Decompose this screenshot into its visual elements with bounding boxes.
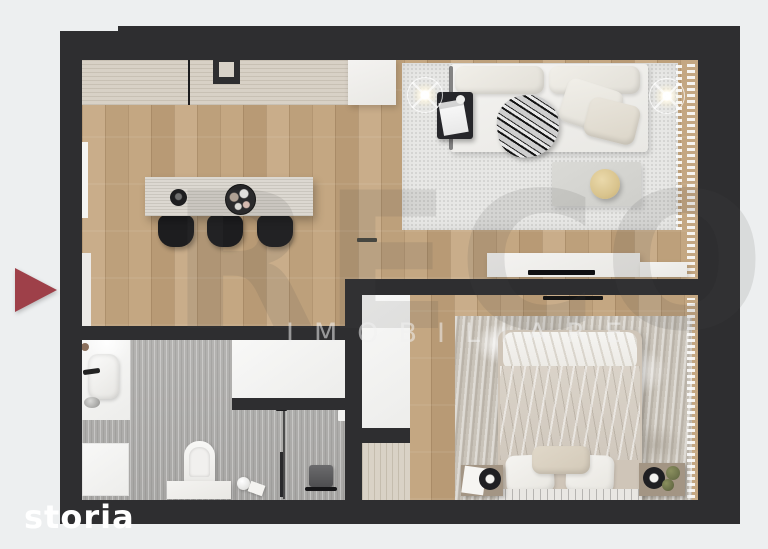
floor-lamp [407, 77, 443, 113]
sofa-back-cushion [455, 66, 544, 94]
soap-dish [84, 397, 100, 408]
living-bedroom-wall [345, 279, 698, 295]
potted-plant [666, 466, 680, 480]
bar-stool [158, 215, 194, 247]
closet-stub-wall [362, 428, 410, 443]
outer-wall-right [698, 31, 740, 524]
wall-mounted-tv [543, 296, 603, 300]
floor-plan-image: RECO IMOBILIARE storia [0, 0, 768, 549]
kitchen-counter-divider [188, 58, 190, 105]
floor-vent [357, 238, 377, 242]
sheer-curtain [687, 298, 695, 498]
entrance-arrow-icon [15, 268, 57, 312]
bedroom-closet [362, 443, 410, 500]
left-wall-window [82, 142, 88, 218]
shower-stool [309, 465, 333, 487]
entry-hall-zone [232, 340, 345, 398]
round-tray [479, 468, 501, 490]
serving-tray [225, 184, 256, 215]
outer-wall-bottom [60, 500, 740, 524]
ventilation-column-core [219, 62, 234, 77]
fruit-bowl [170, 189, 187, 206]
bed-accent-cushion [532, 446, 590, 474]
refrigerator [348, 58, 396, 105]
side-cabinet [640, 262, 687, 277]
tv [528, 270, 595, 275]
bar-stool [257, 215, 293, 247]
toilet-seat [189, 447, 210, 477]
potted-plant [662, 479, 674, 491]
entry-stub-wall [232, 398, 347, 410]
bedroom-door-open [362, 295, 410, 428]
shower-column [280, 452, 283, 497]
decor-dish [456, 95, 465, 104]
storia-logo: storia [24, 498, 135, 536]
gold-side-table [590, 169, 620, 199]
entrance-door-open [82, 253, 91, 333]
bathroom-bedroom-wall [345, 279, 362, 500]
cosmetics-jar [81, 343, 89, 351]
shower-glass-panel [283, 403, 285, 499]
outer-wall-left [60, 31, 82, 524]
sheer-curtain [687, 63, 695, 277]
outer-wall-top [60, 31, 740, 60]
bar-stool [207, 215, 243, 247]
washing-machine [82, 443, 129, 496]
bathroom-sink [88, 354, 119, 399]
shower-stool-base [305, 487, 337, 491]
bathroom-cabinet [167, 481, 231, 499]
floor-lamp [649, 78, 685, 114]
bathroom-top-wall [60, 326, 345, 340]
bed-sheet-fold [503, 332, 637, 370]
